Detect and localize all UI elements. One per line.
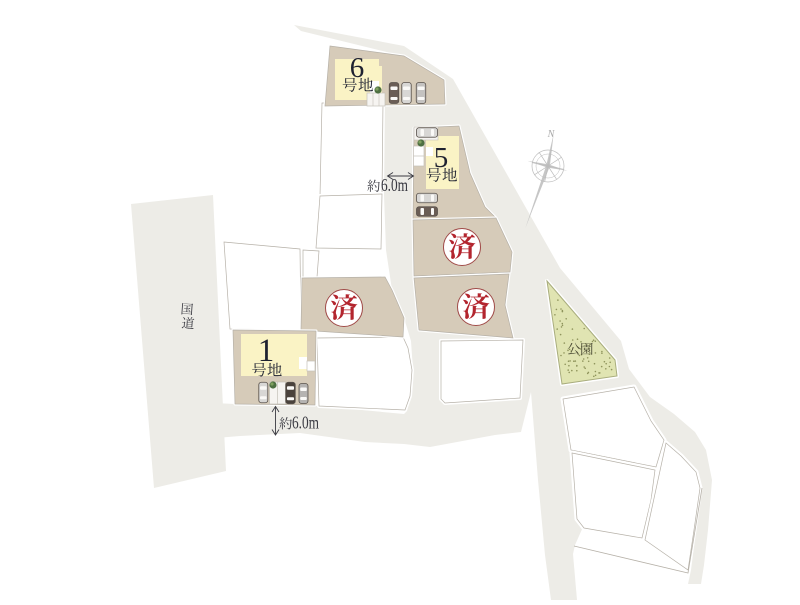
svg-text:N: N bbox=[547, 129, 556, 140]
svg-text:6: 6 bbox=[350, 52, 365, 84]
svg-text:6.0m: 6.0m bbox=[381, 175, 408, 195]
svg-text:5: 5 bbox=[434, 142, 449, 174]
svg-text:6.0m: 6.0m bbox=[292, 413, 319, 433]
